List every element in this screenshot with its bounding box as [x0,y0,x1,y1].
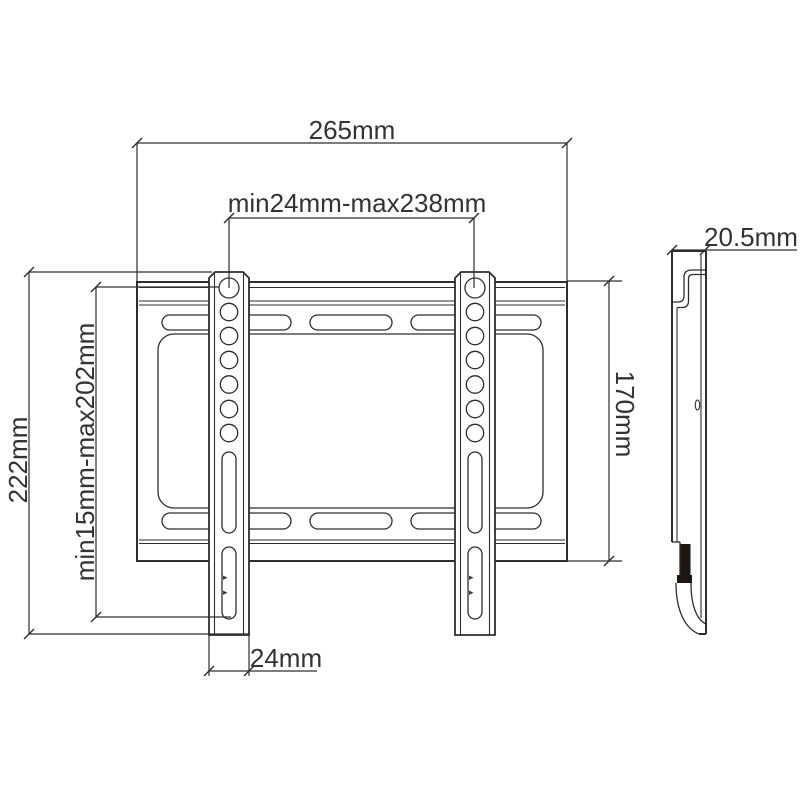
label-rail-width: 24mm [250,643,322,673]
label-plate-height: 170mm [610,371,640,458]
plate-outline [137,282,567,561]
label-overall-height: 222mm [3,417,33,504]
label-vertical-hole-range: min15mm-max202mm [70,323,100,582]
label-side-depth: 20.5mm [704,222,798,252]
drawing-canvas: 265mm min24mm-max238mm 222mm min15mm-max… [0,0,800,800]
label-horizontal-hole-range: min24mm-max238mm [228,188,487,218]
dimension-labels: 265mm min24mm-max238mm 222mm min15mm-max… [3,115,798,673]
dim-horizontal-hole-range [224,213,479,288]
technical-drawing: 265mm min24mm-max238mm 222mm min15mm-max… [0,0,800,800]
front-view-wall-plate [137,282,567,561]
rail-hole-pattern [219,278,485,619]
side-view-profile [672,251,706,634]
lock-bar [681,544,691,578]
label-overall-width: 265mm [309,115,396,145]
slot-marks [223,576,474,595]
